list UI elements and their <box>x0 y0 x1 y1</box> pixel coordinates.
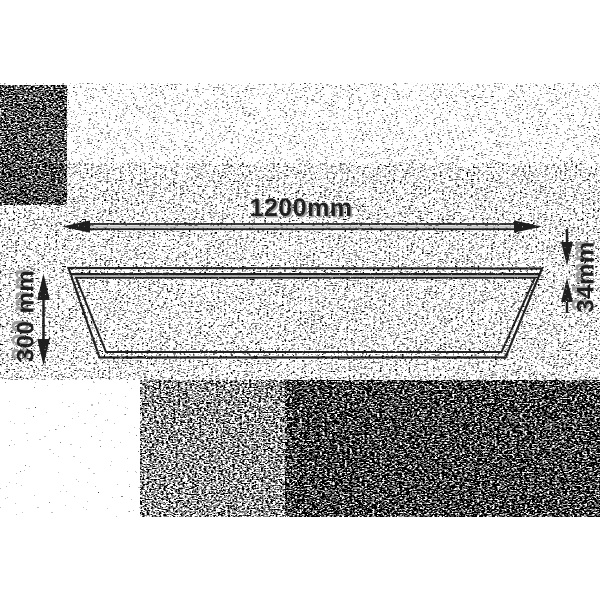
noise-erosion-overlay <box>0 83 600 517</box>
dimension-diagram: 1200mm 1200mm 300 mm 300 mm 34mm 34mm <box>0 0 600 600</box>
diagram-canvas: 1200mm 1200mm 300 mm 300 mm 34mm 34mm <box>0 0 600 600</box>
